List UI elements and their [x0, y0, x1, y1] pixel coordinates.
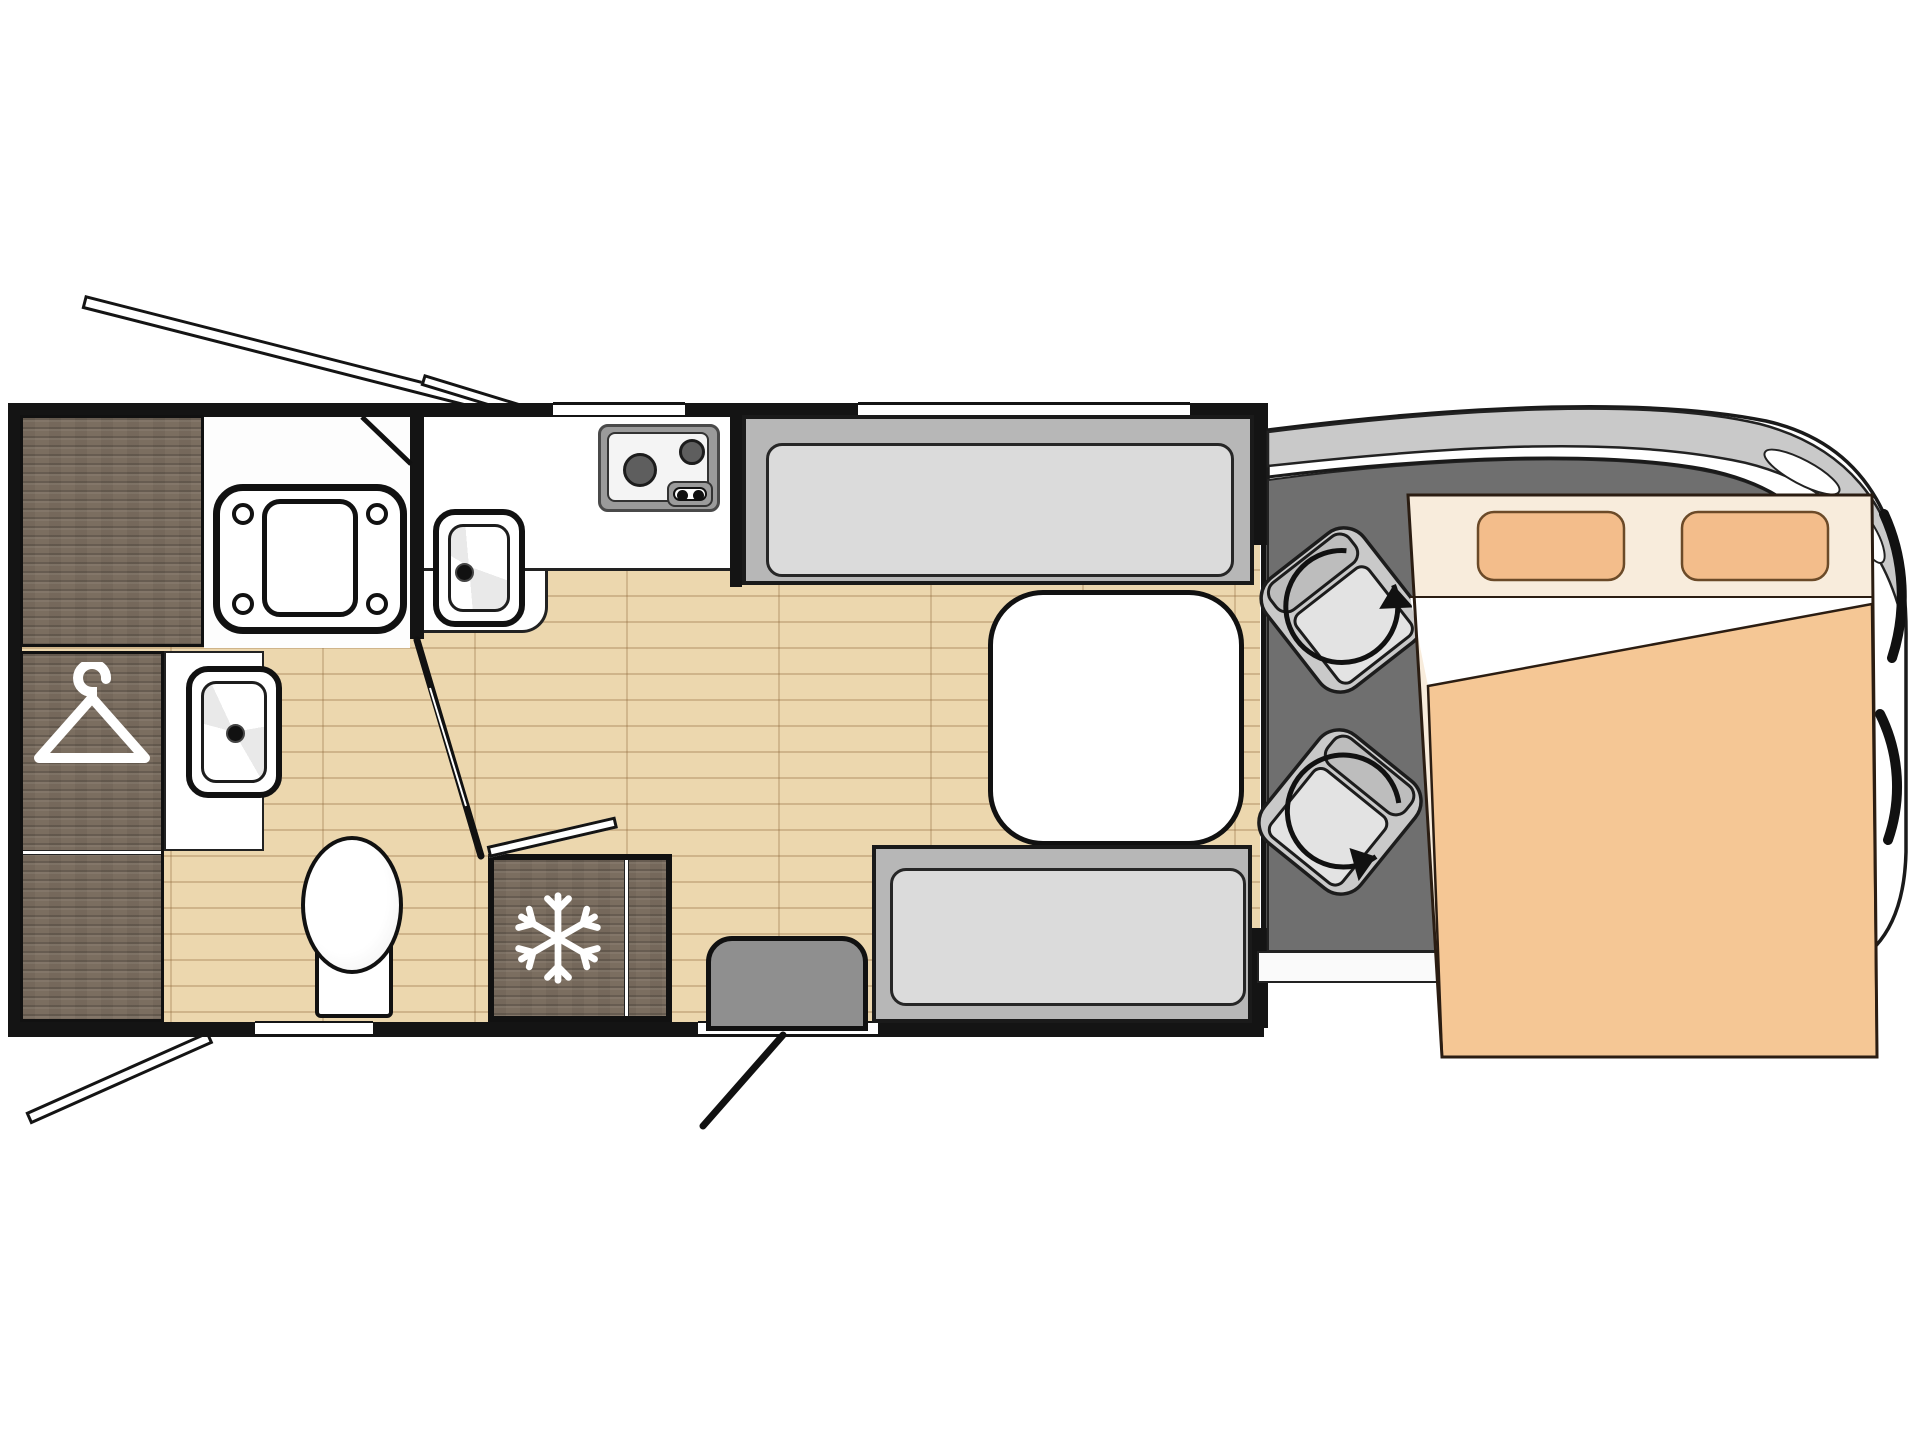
shower-door [362, 417, 411, 464]
cab-sill [1258, 952, 1462, 982]
floorplan-canvas [0, 0, 1920, 1440]
entry-door-open [703, 1035, 783, 1126]
bed-pillow [1478, 512, 1624, 580]
bed-pillow [1682, 512, 1828, 580]
cab-and-bed-overlay [0, 0, 1920, 1440]
washroom-door-stripe [430, 688, 466, 806]
drop-down-bed [1408, 495, 1877, 1057]
